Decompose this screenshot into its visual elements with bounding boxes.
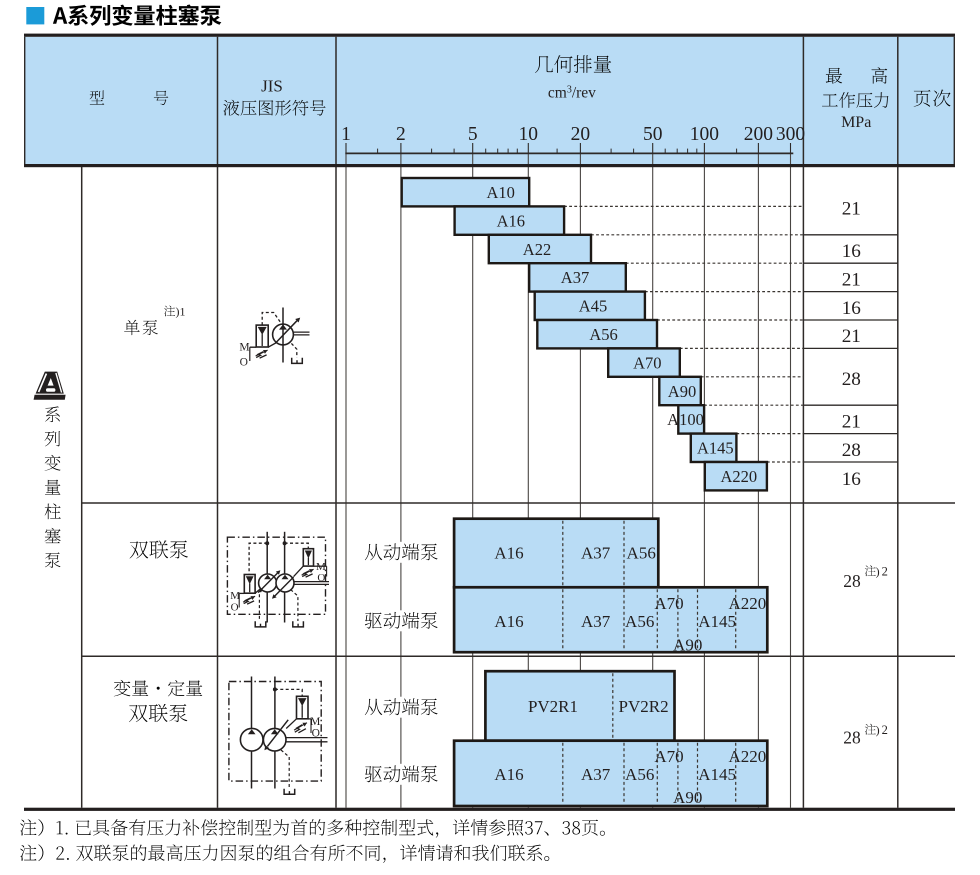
svg-text:21: 21 [842, 198, 861, 219]
svg-text:20: 20 [571, 124, 591, 145]
svg-text:2: 2 [882, 723, 888, 737]
svg-text:PV2R1: PV2R1 [528, 697, 578, 716]
svg-text:MPa: MPa [841, 114, 871, 131]
svg-text:M: M [310, 716, 320, 728]
svg-text:A220: A220 [729, 594, 767, 613]
svg-text:200: 200 [744, 124, 773, 145]
svg-text:16: 16 [842, 298, 862, 319]
svg-text:A145: A145 [697, 439, 734, 458]
svg-text:A145: A145 [698, 612, 736, 631]
svg-text:A90: A90 [673, 635, 702, 654]
svg-text:A70: A70 [633, 353, 661, 372]
svg-text:2: 2 [882, 564, 888, 578]
svg-text:A16: A16 [494, 765, 523, 784]
svg-text:cm3/rev: cm3/rev [548, 85, 596, 102]
svg-text:A145: A145 [698, 765, 736, 784]
svg-text:A10: A10 [486, 183, 514, 202]
svg-text:300: 300 [776, 124, 805, 145]
svg-text:): ) [876, 723, 880, 737]
svg-text:A22: A22 [523, 240, 551, 259]
svg-text:O: O [240, 356, 248, 368]
svg-text:M: M [239, 342, 249, 354]
svg-text:10: 10 [519, 124, 539, 145]
svg-text:)1: )1 [176, 305, 186, 319]
svg-text:16: 16 [842, 469, 862, 490]
svg-text:28: 28 [843, 571, 861, 591]
svg-text:A37: A37 [561, 268, 589, 287]
svg-text:1: 1 [341, 124, 351, 145]
svg-text:A220: A220 [720, 467, 757, 486]
svg-text:A70: A70 [654, 594, 683, 613]
svg-text:A90: A90 [673, 788, 702, 807]
svg-text:O: O [231, 602, 239, 614]
svg-text:A100: A100 [667, 410, 704, 429]
svg-text:100: 100 [690, 124, 719, 145]
svg-text:A56: A56 [589, 325, 617, 344]
svg-text:A220: A220 [729, 747, 767, 766]
svg-text:A37: A37 [581, 612, 611, 631]
svg-text:2: 2 [396, 124, 406, 145]
svg-text:A70: A70 [654, 747, 683, 766]
svg-text:50: 50 [643, 124, 663, 145]
svg-text:A37: A37 [581, 543, 611, 562]
svg-text:A45: A45 [579, 297, 607, 316]
svg-text:28: 28 [843, 727, 861, 747]
svg-text:A90: A90 [668, 382, 696, 401]
svg-text:A16: A16 [497, 211, 525, 230]
svg-text:A37: A37 [581, 765, 611, 784]
svg-text:A16: A16 [494, 612, 523, 631]
svg-text:A56: A56 [625, 765, 654, 784]
svg-text:21: 21 [842, 411, 861, 432]
svg-text:A16: A16 [494, 543, 523, 562]
svg-text:28: 28 [842, 440, 861, 461]
svg-text:PV2R2: PV2R2 [619, 697, 669, 716]
svg-text:A56: A56 [627, 543, 656, 562]
svg-text:21: 21 [842, 269, 861, 290]
svg-text:16: 16 [842, 241, 862, 262]
svg-text:5: 5 [468, 124, 478, 145]
svg-text:): ) [876, 564, 880, 578]
svg-text:O: O [317, 572, 325, 584]
svg-text:21: 21 [842, 326, 861, 347]
svg-text:28: 28 [842, 369, 861, 390]
svg-text:JIS: JIS [261, 77, 283, 96]
svg-text:A56: A56 [625, 612, 654, 631]
